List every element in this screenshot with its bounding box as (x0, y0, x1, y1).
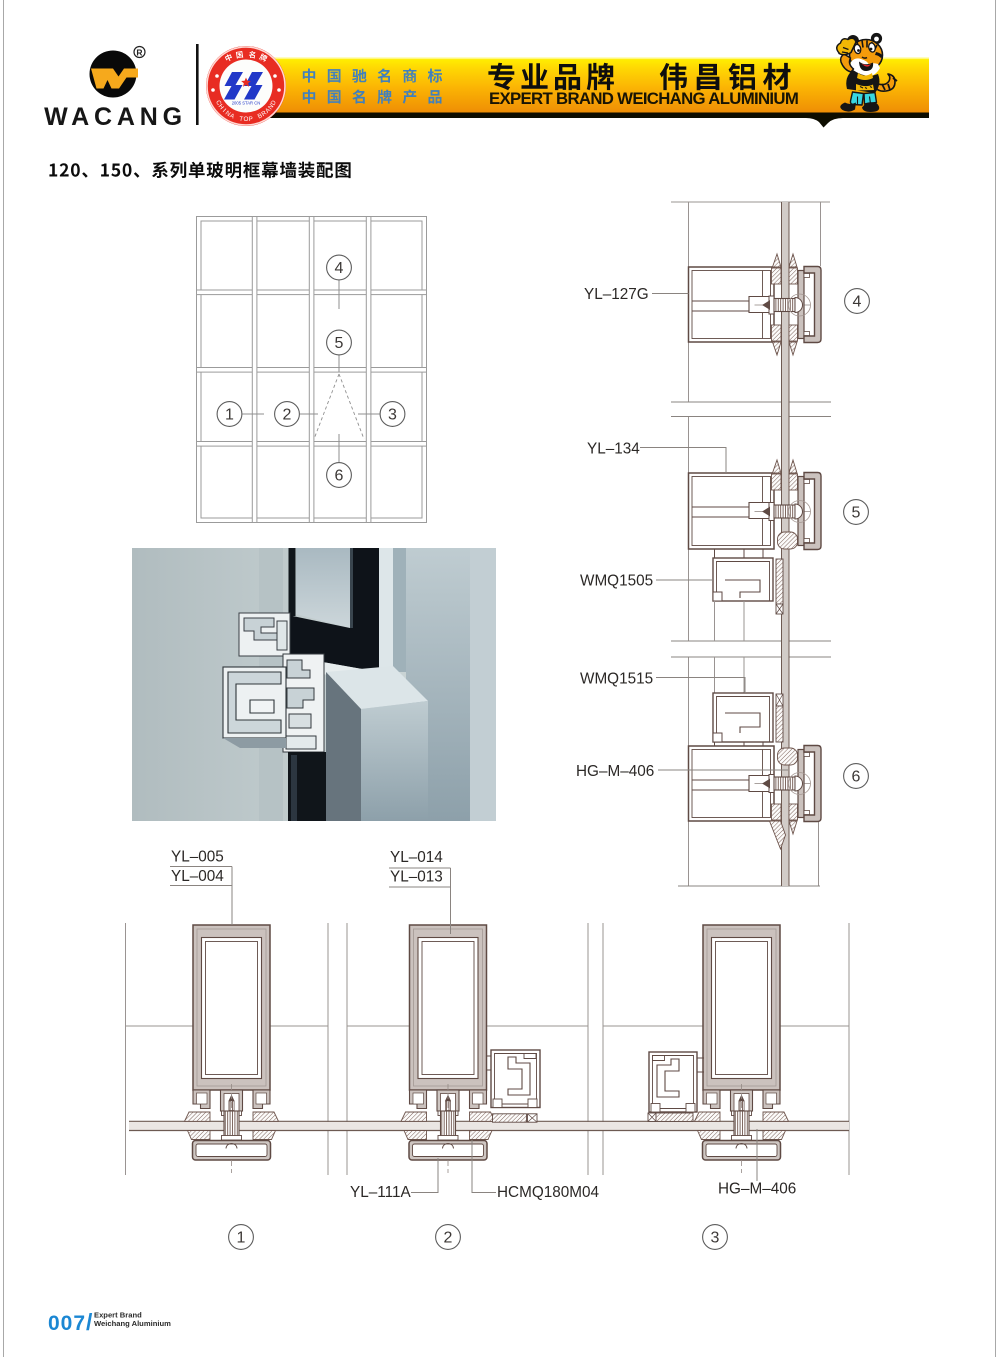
svg-text:3: 3 (711, 1230, 720, 1247)
svg-text:3: 3 (388, 407, 397, 424)
svg-text:YL–014: YL–014 (390, 849, 443, 866)
svg-text:HG–M–406: HG–M–406 (576, 763, 654, 780)
svg-text:1: 1 (225, 407, 234, 424)
svg-text:YL–127G: YL–127G (584, 286, 649, 303)
svg-text:HCMQ180M04: HCMQ180M04 (497, 1184, 600, 1201)
svg-text:4: 4 (335, 260, 344, 277)
svg-text:2: 2 (444, 1230, 453, 1247)
svg-text:WMQ1515: WMQ1515 (580, 671, 653, 688)
svg-text:HG–M–406: HG–M–406 (718, 1181, 796, 1198)
svg-text:4: 4 (853, 294, 862, 311)
svg-text:YL–004: YL–004 (171, 868, 224, 885)
svg-text:2: 2 (283, 407, 292, 424)
svg-text:YL–134: YL–134 (587, 441, 640, 458)
svg-text:1: 1 (237, 1230, 246, 1247)
svg-text:YL–005: YL–005 (171, 849, 224, 866)
svg-text:YL–013: YL–013 (390, 869, 443, 886)
svg-text:6: 6 (852, 769, 861, 786)
svg-text:6: 6 (335, 468, 344, 485)
svg-text:YL–111A: YL–111A (350, 1184, 411, 1201)
svg-text:WMQ1505: WMQ1505 (580, 573, 653, 590)
svg-text:5: 5 (852, 505, 861, 522)
svg-text:5: 5 (335, 335, 344, 352)
